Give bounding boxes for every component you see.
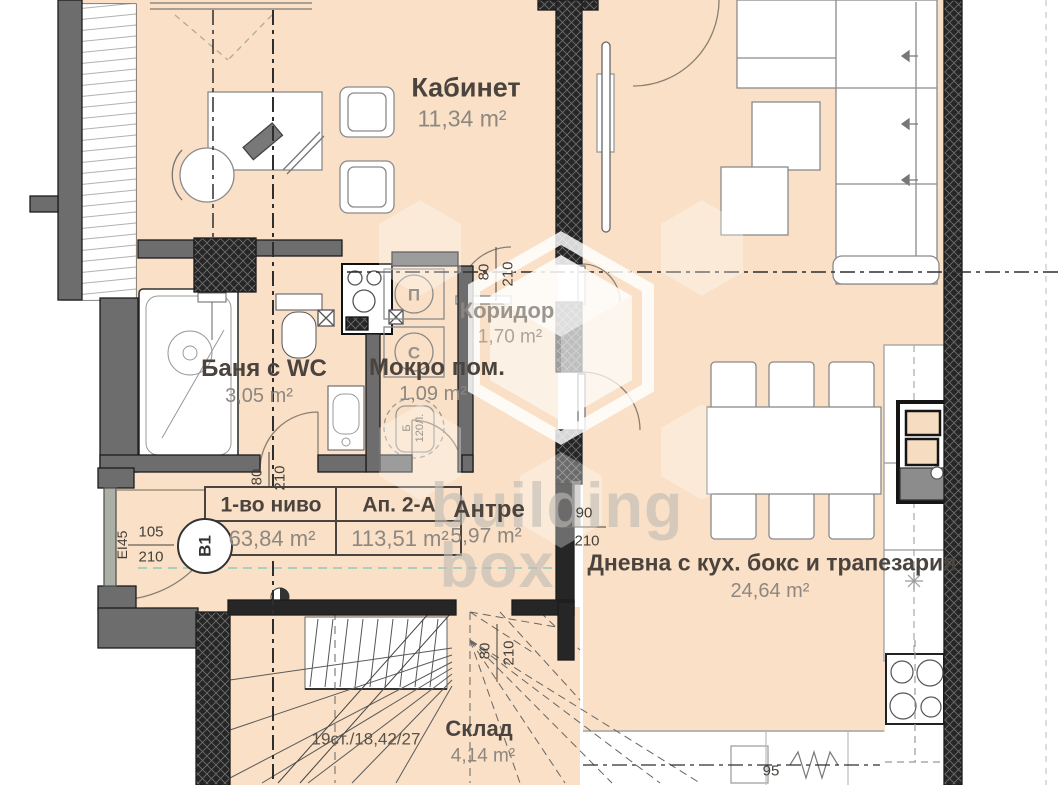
boiler-label: Б: [402, 424, 414, 431]
boiler-label-group: Б 120Л.: [402, 414, 426, 443]
dining-chair: [711, 362, 756, 409]
room-label-dnevna: Дневна с кух. бокс и трапезария: [587, 552, 956, 575]
dim-sklad-door-height: 210: [502, 640, 517, 665]
washer-label: П: [408, 287, 420, 304]
dim-entrance-height: 210: [138, 550, 163, 565]
info-table-apartment-area: 113,51 m²: [351, 528, 448, 550]
room-label-koridor: Коридор: [460, 300, 555, 322]
room-label-sklad: Склад: [445, 718, 512, 740]
dining-chair: [829, 492, 874, 539]
info-table-level-header: 1-во ниво: [220, 495, 321, 516]
dryer-label: С: [408, 345, 420, 362]
dim-koridor-door-height: 210: [501, 261, 516, 286]
room-area-banya: 3,05 m²: [225, 386, 293, 406]
coffee-table: [752, 102, 820, 170]
floor-plan: building box Кабинет 11,34 m² Коридор 1,…: [0, 0, 1063, 785]
toilet-tank: [276, 294, 322, 310]
floor-plan-drawing: [0, 0, 1063, 785]
office-chair: [180, 148, 234, 202]
dim-banya-door-height: 210: [273, 465, 288, 490]
room-label-antre: Антре: [453, 498, 525, 522]
shaft-duct: [346, 317, 368, 330]
dining-chair: [829, 362, 874, 409]
dining-chair: [769, 492, 814, 539]
dim-living-door-height: 210: [574, 534, 599, 549]
room-area-kabinet: 11,34 m²: [417, 108, 506, 131]
dining-chair: [711, 492, 756, 539]
stair-note: 19ст./18,42/27: [312, 731, 421, 748]
sofa-right-section: [836, 0, 937, 284]
armchair-cushion: [348, 167, 386, 207]
room-label-mokro: Мокро пом.: [369, 356, 505, 380]
door-tag-b1: В1: [197, 535, 214, 557]
room-label-banya: Баня с WC: [201, 357, 327, 381]
boiler-capacity: 120Л.: [415, 414, 427, 443]
dim-kitchen-width: 95: [763, 764, 780, 779]
bath-faucet: [198, 293, 226, 302]
dim-living-door-width: 90: [576, 506, 593, 521]
sofa-armrest: [833, 256, 939, 284]
armchair-cushion: [348, 93, 386, 131]
sofa-top-section: [737, 0, 838, 88]
dining-chair: [769, 362, 814, 409]
dim-entrance-width: 105: [138, 525, 163, 540]
fire-rating-label: EI45: [115, 531, 129, 560]
room-label-kabinet: Кабинет: [411, 75, 520, 102]
room-area-dnevna: 24,64 m²: [731, 581, 810, 601]
room-area-mokro: 1,09 m²: [399, 384, 467, 404]
toilet-bowl: [282, 312, 316, 358]
room-area-sklad: 4,14 m²: [451, 747, 515, 766]
room-area-antre: 5,97 m²: [450, 526, 521, 547]
info-table-apartment-header: Ап. 2-А: [362, 495, 435, 516]
tv-panel: [602, 42, 610, 232]
info-table-level-area: 63,84 m²: [229, 528, 316, 550]
dim-sklad-door-width: 80: [478, 643, 493, 660]
dim-banya-door-width: 80: [250, 469, 265, 486]
room-area-koridor: 1,70 m²: [478, 328, 542, 347]
dim-koridor-door-width: 80: [477, 264, 492, 281]
